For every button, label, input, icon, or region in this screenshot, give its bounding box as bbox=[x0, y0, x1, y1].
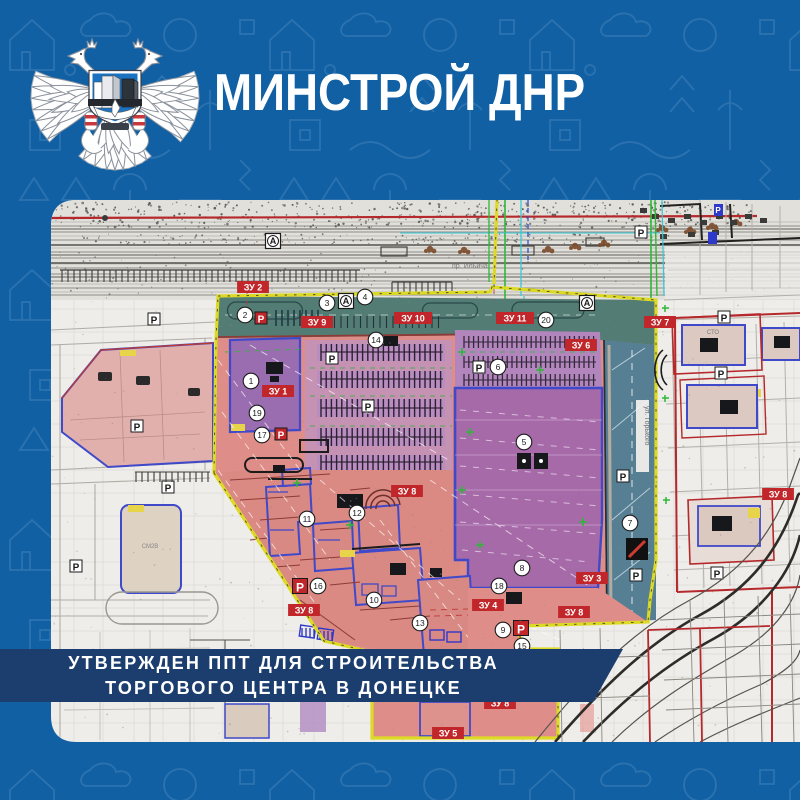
svg-text:СТО: СТО bbox=[707, 330, 720, 336]
svg-text:P: P bbox=[517, 622, 525, 636]
svg-text:пр. Ильича: пр. Ильича bbox=[452, 263, 488, 270]
svg-text:A: A bbox=[270, 236, 277, 246]
svg-text:ЗУ 11: ЗУ 11 bbox=[504, 313, 527, 323]
svg-text:20: 20 bbox=[541, 315, 551, 325]
svg-text:3: 3 bbox=[325, 298, 330, 308]
svg-text:P: P bbox=[296, 580, 304, 594]
svg-text:A: A bbox=[343, 296, 350, 306]
svg-text:P: P bbox=[620, 472, 627, 483]
svg-text:ЗУ 3: ЗУ 3 bbox=[583, 573, 601, 583]
svg-text:12: 12 bbox=[352, 508, 362, 518]
svg-text:P: P bbox=[718, 369, 725, 380]
svg-text:P: P bbox=[73, 562, 80, 573]
svg-text:P: P bbox=[134, 422, 141, 433]
svg-text:A: A bbox=[584, 298, 591, 308]
svg-text:4: 4 bbox=[363, 292, 368, 302]
svg-text:9: 9 bbox=[501, 625, 506, 635]
svg-text:19: 19 bbox=[252, 408, 262, 418]
svg-text:7: 7 bbox=[628, 518, 633, 528]
svg-text:11: 11 bbox=[303, 514, 312, 524]
svg-text:6: 6 bbox=[496, 362, 501, 372]
svg-text:17: 17 bbox=[257, 430, 267, 440]
svg-text:P: P bbox=[365, 402, 372, 413]
svg-text:ЗУ 8: ЗУ 8 bbox=[398, 486, 416, 496]
svg-text:ЗУ 1: ЗУ 1 bbox=[269, 386, 287, 396]
svg-text:ЗУ 5: ЗУ 5 bbox=[439, 728, 457, 738]
svg-text:ЗУ 4: ЗУ 4 bbox=[479, 600, 497, 610]
svg-text:P: P bbox=[714, 569, 721, 580]
svg-text:8: 8 bbox=[520, 563, 525, 573]
svg-text:ул. Горького: ул. Горького bbox=[643, 406, 650, 446]
svg-text:1: 1 bbox=[249, 376, 254, 386]
svg-text:ЗУ 8: ЗУ 8 bbox=[565, 607, 583, 617]
svg-text:ЗУ 2: ЗУ 2 bbox=[244, 282, 262, 292]
svg-text:ЗУ 10: ЗУ 10 bbox=[401, 313, 424, 323]
svg-text:СМ2В: СМ2В bbox=[142, 544, 159, 550]
svg-text:P: P bbox=[721, 313, 728, 324]
svg-text:18: 18 bbox=[494, 581, 504, 591]
svg-text:P: P bbox=[278, 430, 285, 441]
svg-text:14: 14 bbox=[371, 335, 381, 345]
svg-text:P: P bbox=[715, 206, 721, 215]
svg-text:ЗУ 7: ЗУ 7 bbox=[651, 317, 669, 327]
svg-text:P: P bbox=[329, 354, 336, 365]
svg-text:10: 10 bbox=[369, 595, 379, 605]
svg-text:13: 13 bbox=[415, 618, 425, 628]
svg-text:P: P bbox=[151, 315, 158, 326]
svg-text:P: P bbox=[633, 571, 640, 582]
svg-text:P: P bbox=[258, 314, 265, 325]
svg-text:ЗУ 9: ЗУ 9 bbox=[308, 317, 326, 327]
svg-text:ЗУ 8: ЗУ 8 bbox=[295, 605, 313, 615]
svg-text:ЗУ 8: ЗУ 8 bbox=[769, 489, 787, 499]
svg-text:P: P bbox=[165, 483, 172, 494]
svg-text:P: P bbox=[476, 363, 483, 374]
svg-text:2: 2 bbox=[243, 310, 248, 320]
svg-text:ЗУ 6: ЗУ 6 bbox=[572, 340, 590, 350]
svg-text:P: P bbox=[638, 228, 645, 239]
svg-text:16: 16 bbox=[313, 581, 323, 591]
svg-text:5: 5 bbox=[522, 437, 527, 447]
